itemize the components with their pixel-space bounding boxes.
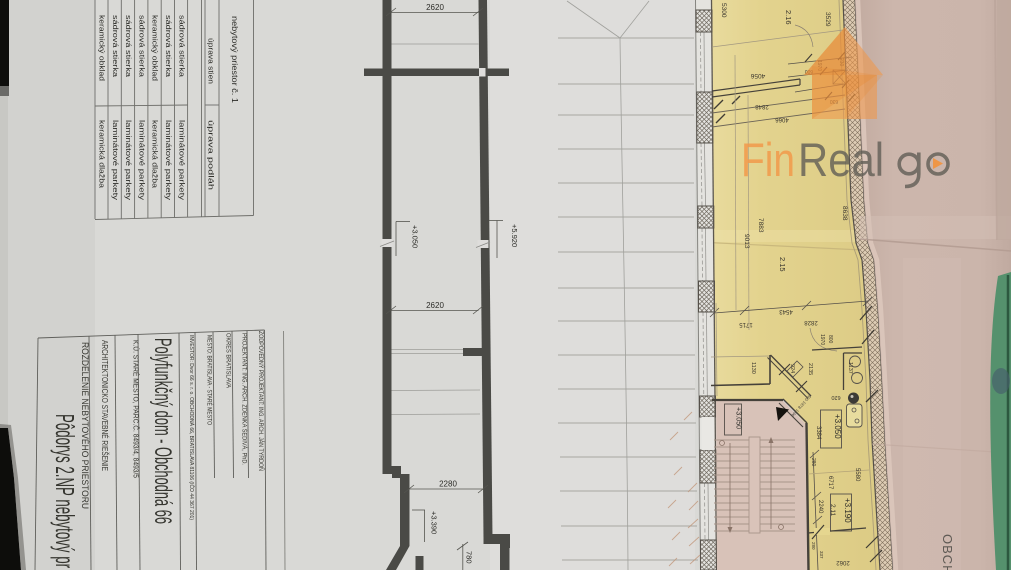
svg-text:1130: 1130 (750, 362, 756, 374)
svg-text:2135: 2135 (807, 363, 813, 375)
svg-text:280: 280 (810, 458, 816, 467)
svg-text:sádrová stierka: sádrová stierka (164, 15, 173, 78)
svg-text:+3.390: +3.390 (430, 511, 439, 534)
svg-text:1970: 1970 (819, 334, 825, 345)
svg-text:sádrová stierka: sádrová stierka (111, 15, 120, 78)
svg-text:OKRES BRATISLAVA: OKRES BRATISLAVA (225, 333, 232, 389)
svg-text:K.Ú. STARÉ MESTO, PARC.Č. 8493: K.Ú. STARÉ MESTO, PARC.Č. 8493/4, 8493/5 (132, 340, 141, 478)
svg-text:MESTO: BRATISLAVA - STARÉ MEST: MESTO: BRATISLAVA - STARÉ MESTO (206, 335, 213, 425)
svg-text:337: 337 (819, 551, 824, 559)
svg-text:úprava stien: úprava stien (207, 38, 216, 84)
svg-text:laminátové parkety: laminátové parkety (164, 120, 173, 200)
svg-text:sádrová stierka: sádrová stierka (124, 15, 133, 78)
svg-text:keramická dlažba: keramická dlažba (151, 120, 160, 189)
svg-text:keramická dlažba: keramická dlažba (98, 120, 107, 189)
svg-text:1715: 1715 (739, 321, 753, 327)
svg-text:2.15: 2.15 (778, 257, 787, 272)
svg-text:4066: 4066 (775, 116, 789, 122)
svg-text:5300: 5300 (720, 3, 727, 18)
svg-text:2240: 2240 (817, 500, 823, 514)
svg-text:2848: 2848 (755, 103, 769, 109)
svg-text:+3.050: +3.050 (833, 414, 842, 439)
svg-text:2620: 2620 (426, 301, 444, 310)
svg-text:8638: 8638 (841, 206, 848, 221)
svg-text:5580: 5580 (854, 468, 860, 482)
svg-text:1137: 1137 (847, 362, 853, 374)
svg-text:ARCHITEKTONICKO STAVEBNÉ RIEŠE: ARCHITEKTONICKO STAVEBNÉ RIEŠENIE (100, 340, 110, 471)
svg-text:Polyfunkčný dom - Obchodná 66: Polyfunkčný dom - Obchodná 66 (149, 338, 176, 524)
svg-text:ZODPOVEDNÝ PROJEKTANT: ING. AR: ZODPOVEDNÝ PROJEKTANT: ING. ARCH. JÁN TY… (257, 331, 264, 471)
svg-text:6717: 6717 (827, 476, 833, 490)
svg-text:2.11: 2.11 (829, 504, 836, 517)
svg-text:laminátové parkety: laminátové parkety (124, 120, 133, 200)
svg-text:2620: 2620 (426, 3, 444, 12)
svg-text:780: 780 (465, 551, 474, 564)
svg-text:620: 620 (831, 394, 840, 400)
svg-text:úprava podláh: úprava podláh (207, 120, 216, 190)
svg-text:2828: 2828 (804, 319, 818, 325)
svg-text:PROJEKTANT: ING. ARCH. ZDENKA: PROJEKTANT: ING. ARCH. ZDENKA ŠEDIVÁ, Ph… (241, 333, 248, 465)
svg-text:+3.190: +3.190 (843, 498, 852, 523)
svg-text:4056: 4056 (750, 72, 765, 79)
svg-text:+3.050: +3.050 (411, 225, 420, 248)
svg-text:Fin: Fin (741, 133, 795, 186)
svg-text:Real: Real (798, 133, 884, 186)
svg-text:laminátové parkety: laminátové parkety (177, 120, 186, 200)
svg-text:laminátové parkety: laminátové parkety (137, 120, 146, 200)
svg-text:2280: 2280 (439, 480, 457, 489)
svg-text:9013: 9013 (743, 234, 750, 249)
svg-text:INVESTOR: Dvor 66 s. r. o. OB: INVESTOR: Dvor 66 s. r. o. OBCHODNÁ 66, … (188, 335, 195, 520)
svg-text:280: 280 (811, 542, 816, 550)
svg-text:keramický obklad: keramický obklad (151, 15, 160, 81)
svg-text:OBCHOD: OBCHOD (940, 534, 955, 570)
svg-text:2062: 2062 (836, 559, 850, 565)
svg-text:sádrová stierka: sádrová stierka (177, 15, 186, 78)
svg-text:7883: 7883 (757, 218, 764, 233)
svg-text:2.16: 2.16 (784, 10, 793, 25)
svg-text:keramický obklad: keramický obklad (98, 15, 107, 81)
svg-text:laminátové parkety: laminátové parkety (111, 120, 120, 200)
svg-text:+3.050: +3.050 (735, 407, 744, 429)
svg-text:nebytový priestor č. 1: nebytový priestor č. 1 (230, 16, 239, 104)
svg-text:3529: 3529 (824, 12, 831, 27)
svg-text:+5.920: +5.920 (510, 224, 519, 247)
svg-text:sádrová stierka: sádrová stierka (137, 15, 146, 78)
svg-text:4543: 4543 (779, 308, 793, 314)
svg-text:Pôdorys 2.NP nebytový pr: Pôdorys 2.NP nebytový pr (50, 414, 80, 568)
svg-text:800: 800 (827, 335, 833, 344)
svg-text:3384: 3384 (815, 426, 821, 440)
